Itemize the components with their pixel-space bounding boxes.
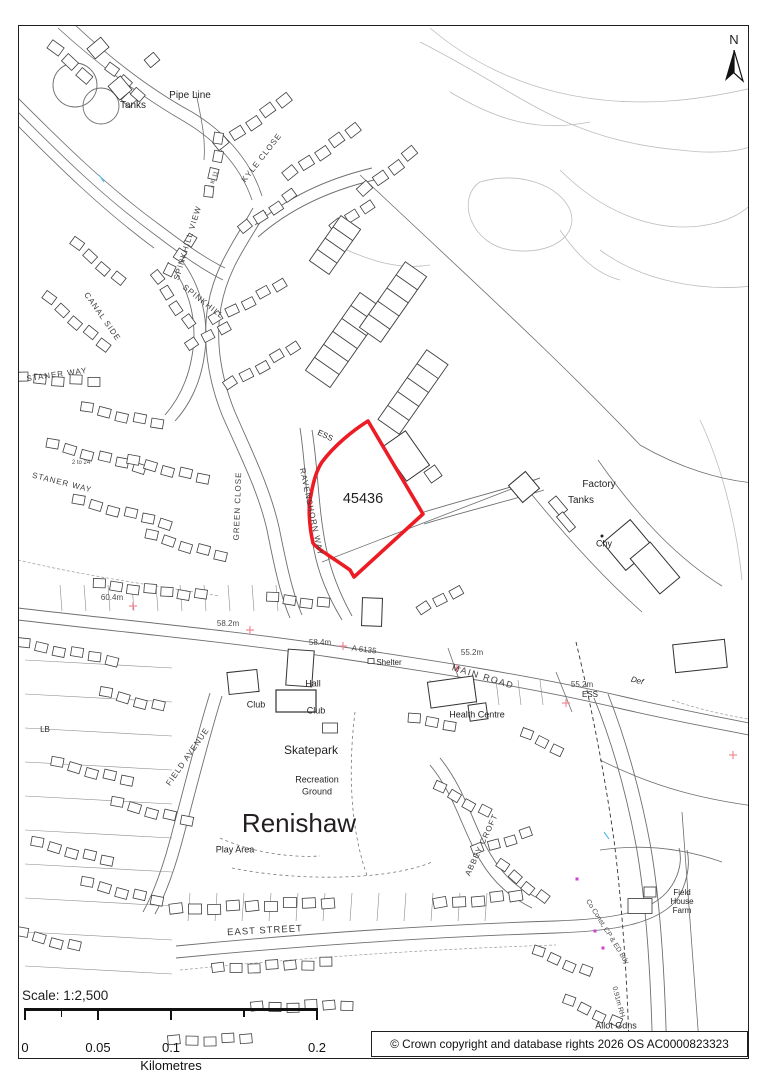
scale-bar: Scale: 1:2,500 00.050.10.2 Kilometres (22, 988, 332, 1003)
scale-tick-label: 0.05 (85, 1040, 110, 1055)
scale-tick (24, 1008, 26, 1020)
scale-ratio-label: Scale: 1:2,500 (22, 988, 332, 1003)
north-label: N (714, 32, 754, 47)
garden-plot-lines (25, 585, 543, 974)
north-arrow-icon (714, 47, 754, 87)
industrial-units (305, 216, 448, 435)
boundary-markers (576, 878, 605, 950)
scale-tick (316, 1008, 318, 1020)
scale-tick-label: 0.1 (162, 1040, 180, 1055)
scale-bar-line: 00.050.10.2 Kilometres (25, 1008, 317, 1022)
scale-tick-label: 0.2 (308, 1040, 326, 1055)
dashed-boundaries (19, 560, 748, 1045)
copyright-box: © Crown copyright and database rights 20… (371, 1031, 748, 1057)
benchmark-crosses (129, 602, 737, 759)
water-marks (99, 175, 609, 839)
scale-tick (97, 1008, 99, 1020)
scale-tick (170, 1008, 172, 1020)
chy-dot (601, 535, 604, 538)
map-page: { "north": { "label": "N" }, "plot": { "… (0, 0, 764, 1080)
scale-unit-label: Kilometres (140, 1058, 201, 1073)
scale-tick-minor (243, 1008, 245, 1017)
scale-tick-minor (61, 1008, 63, 1017)
scale-tick-label: 0 (21, 1040, 28, 1055)
map-canvas: TanksPipe LineKYLE CLOSE1 to 11SPINKHILL… (19, 26, 748, 1057)
map-linework (19, 26, 748, 1057)
copyright-text: © Crown copyright and database rights 20… (390, 1037, 729, 1051)
north-arrow: N (714, 32, 754, 90)
